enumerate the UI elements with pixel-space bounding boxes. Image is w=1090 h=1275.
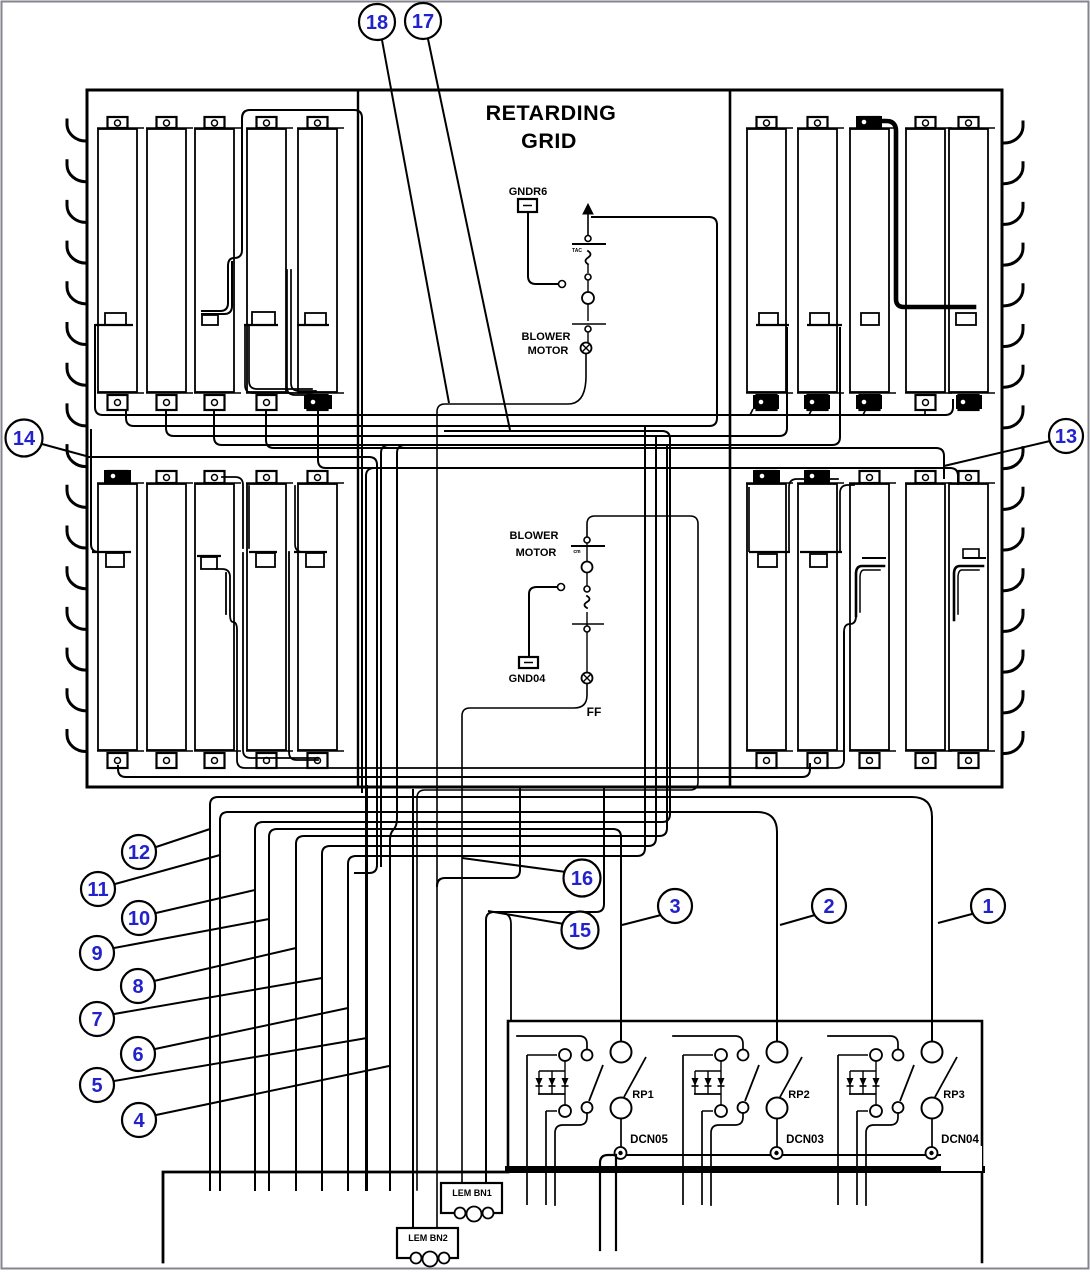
- svg-text:RP1: RP1: [632, 1089, 653, 1101]
- svg-text:GRID: GRID: [521, 129, 577, 153]
- svg-text:11: 11: [87, 879, 108, 901]
- svg-text:DCN04: DCN04: [941, 1134, 979, 1146]
- svg-text:RP3: RP3: [943, 1089, 964, 1101]
- svg-text:LEM BN2: LEM BN2: [408, 1233, 448, 1243]
- svg-text:8: 8: [132, 976, 143, 998]
- svg-text:TAC: TAC: [572, 248, 582, 254]
- svg-text:LEM BN1: LEM BN1: [452, 1188, 492, 1198]
- svg-text:16: 16: [571, 868, 593, 890]
- svg-text:GND04: GND04: [509, 673, 547, 685]
- svg-text:FF: FF: [587, 705, 602, 719]
- svg-text:cm: cm: [573, 549, 581, 555]
- svg-text:GNDR6: GNDR6: [509, 186, 548, 198]
- svg-text:7: 7: [91, 1009, 102, 1031]
- svg-text:1: 1: [982, 896, 993, 918]
- svg-text:9: 9: [91, 943, 102, 965]
- svg-text:18: 18: [366, 12, 388, 34]
- svg-text:14: 14: [13, 428, 36, 450]
- svg-text:DCN03: DCN03: [786, 1134, 824, 1146]
- svg-text:2: 2: [823, 896, 834, 918]
- svg-text:5: 5: [91, 1075, 102, 1097]
- svg-text:4: 4: [133, 1110, 145, 1132]
- svg-text:12: 12: [128, 842, 150, 864]
- svg-text:DCN05: DCN05: [630, 1134, 668, 1146]
- svg-text:10: 10: [128, 908, 150, 930]
- svg-text:6: 6: [132, 1044, 143, 1066]
- svg-text:RETARDING: RETARDING: [486, 101, 617, 125]
- svg-text:17: 17: [412, 11, 434, 33]
- svg-text:MOTOR: MOTOR: [528, 345, 569, 357]
- svg-text:BLOWER: BLOWER: [522, 331, 571, 343]
- svg-text:13: 13: [1055, 426, 1077, 448]
- svg-text:3: 3: [669, 896, 680, 918]
- svg-text:MOTOR: MOTOR: [516, 547, 557, 559]
- svg-text:BLOWER: BLOWER: [510, 530, 559, 542]
- svg-text:15: 15: [569, 920, 591, 942]
- svg-text:RP2: RP2: [788, 1089, 809, 1101]
